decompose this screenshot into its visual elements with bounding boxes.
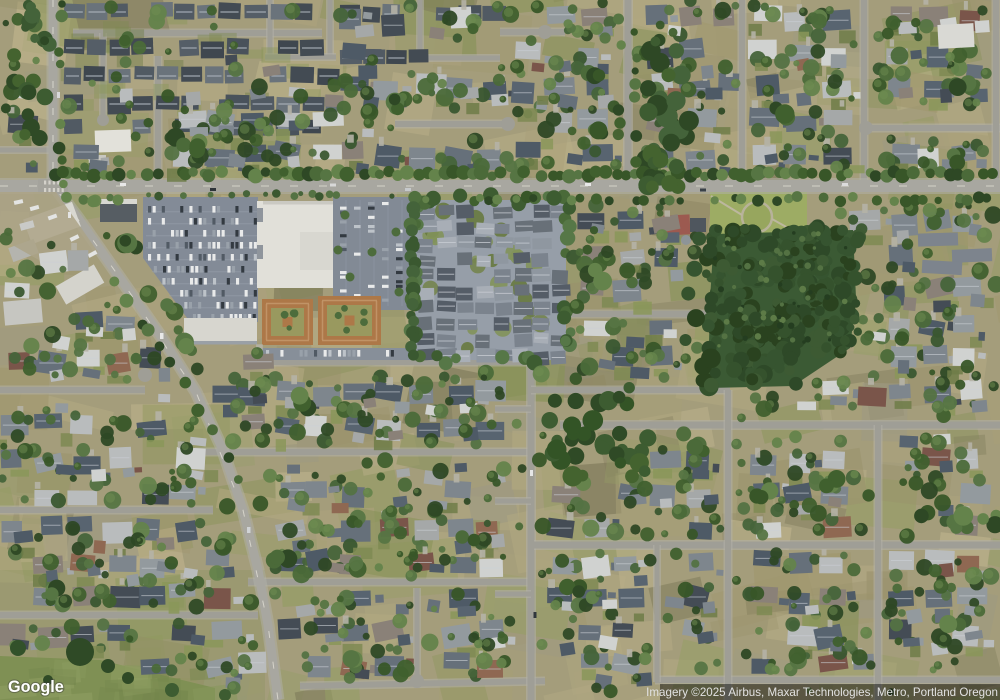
svg-text:Imagery ©2025 Airbus, Maxar Te: Imagery ©2025 Airbus, Maxar Technologies…: [646, 686, 998, 699]
svg-text:Google: Google: [8, 678, 64, 696]
